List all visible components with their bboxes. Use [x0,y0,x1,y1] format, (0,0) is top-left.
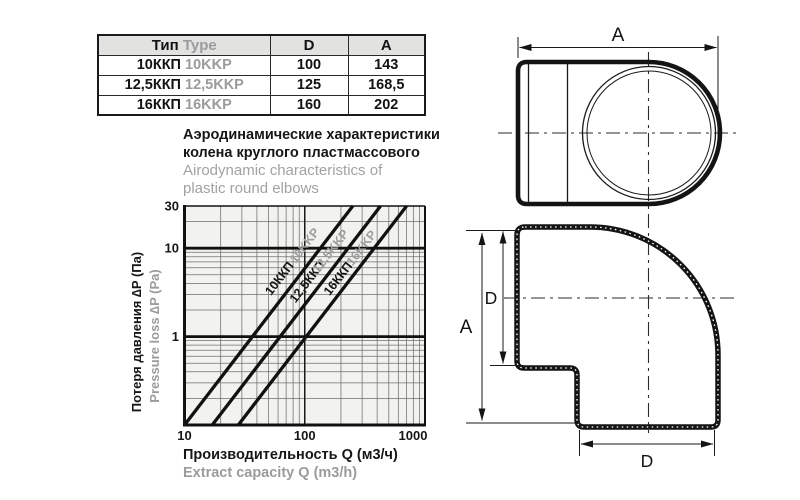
y-tick-label: 1 [172,329,179,344]
x-axis-title-en: Extract capacity Q (m3/h) [183,465,357,481]
x-tick-label: 100 [294,428,316,443]
x-axis-title-ru: Производительность Q (м3/ч) [183,447,398,463]
y-axis-title-en: Pressure loss ∆P (Pa) [147,269,162,402]
technical-figure: 10ККП10KKP12,5ККП12,5KKP16ККП16KKP101001… [0,0,800,500]
x-tick-label: 1000 [399,428,428,443]
y-tick-label: 10 [165,241,179,256]
dimension-label-a: A [460,317,473,338]
gasket-stipple-line [517,227,718,427]
top-view-drawing: A [498,25,736,204]
dimension-label-d: D [485,288,498,308]
dimension-label-a: A [612,25,625,46]
elbow-profile-outline [517,227,718,427]
y-axis-title-ru: Потеря давления ∆P (Па) [129,252,144,412]
y-tick-label: 30 [165,199,179,214]
x-tick-label: 10 [177,428,191,443]
side-view-drawing: A D D [460,227,736,471]
aerodynamic-chart: 10ККП10KKP12,5ККП12,5KKP16ККП16KKP101001… [165,199,428,444]
dimension-label-d: D [641,451,654,471]
catalog-page: { "table": { "headers": { "type_ru": "Ти… [0,0,800,500]
